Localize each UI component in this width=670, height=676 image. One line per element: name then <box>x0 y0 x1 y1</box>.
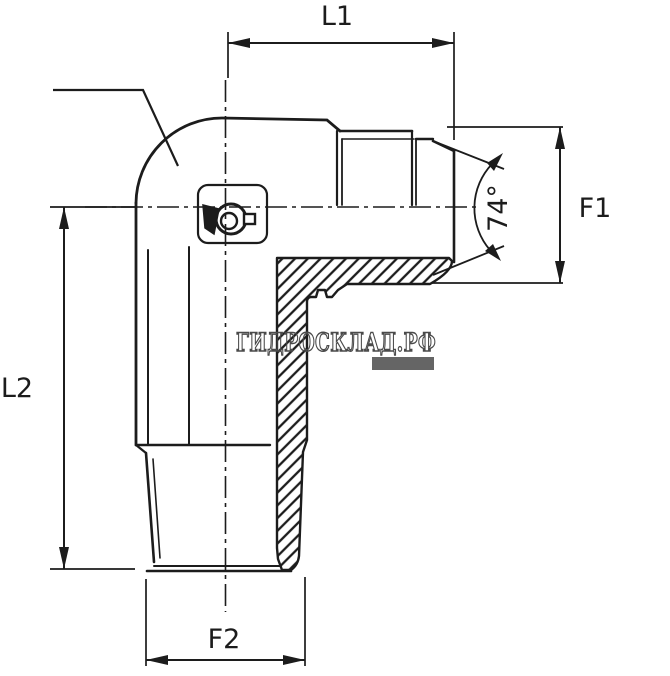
technical-drawing: L1 L2 F1 F2 74° <box>0 0 670 676</box>
manufacturer-stamp <box>198 185 267 243</box>
dimension-f1-label: F1 <box>579 193 612 224</box>
drawing-sheet: L1 L2 F1 F2 74° <box>0 0 670 676</box>
watermark-text: ГИДРОСКЛАД.РФ <box>236 328 436 357</box>
watermark: ГИДРОСКЛАД.РФ <box>236 328 436 370</box>
dimension-l1-label: L1 <box>321 1 353 32</box>
flare-angle-label: 74° <box>483 184 514 232</box>
angle-dimension-74: 74° <box>433 141 514 275</box>
dimension-f2-label: F2 <box>208 624 241 655</box>
dimension-l2: L2 <box>1 207 137 569</box>
section-hatching <box>277 258 452 570</box>
dimension-l2-label: L2 <box>1 373 33 404</box>
leader-line <box>53 90 178 166</box>
